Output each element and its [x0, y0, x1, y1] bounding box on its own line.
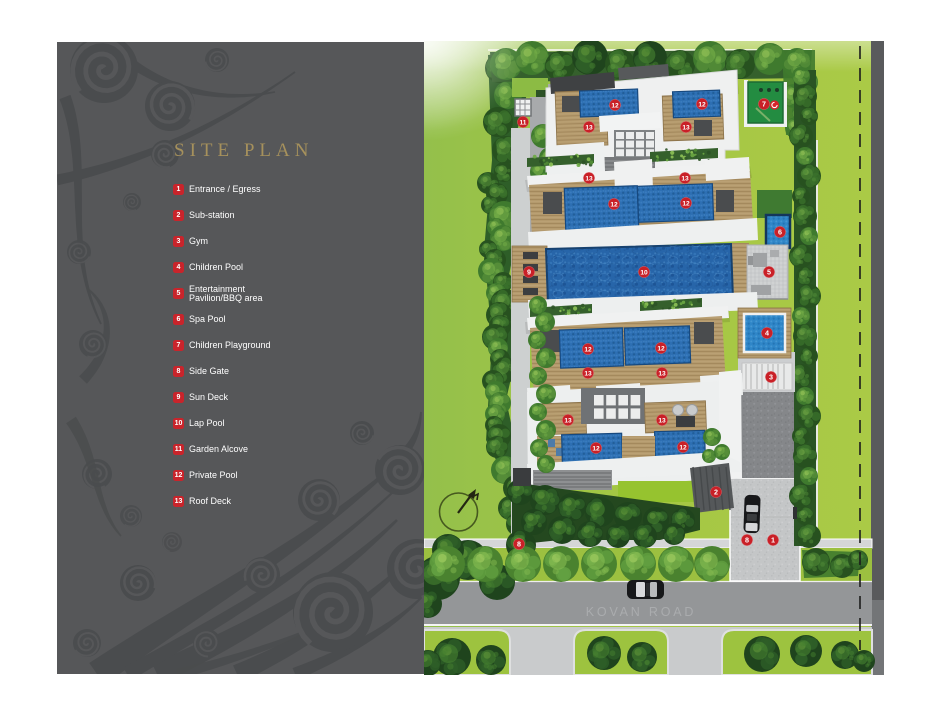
svg-text:1: 1: [771, 536, 775, 545]
svg-text:8: 8: [517, 540, 521, 549]
svg-text:12: 12: [679, 444, 687, 451]
svg-text:13: 13: [681, 175, 689, 182]
svg-text:12: 12: [592, 445, 600, 452]
svg-text:6: 6: [778, 228, 782, 237]
svg-text:12: 12: [611, 102, 619, 109]
svg-text:13: 13: [564, 417, 572, 424]
svg-text:13: 13: [682, 124, 690, 131]
svg-text:12: 12: [610, 201, 618, 208]
svg-text:13: 13: [658, 417, 666, 424]
svg-text:7: 7: [762, 100, 766, 109]
svg-text:4: 4: [765, 329, 769, 338]
svg-text:12: 12: [698, 101, 706, 108]
svg-text:13: 13: [584, 370, 592, 377]
svg-text:8: 8: [745, 536, 749, 545]
svg-text:3: 3: [769, 373, 773, 382]
svg-text:12: 12: [584, 346, 592, 353]
svg-text:11: 11: [520, 119, 527, 126]
svg-text:12: 12: [682, 200, 690, 207]
svg-text:2: 2: [714, 488, 718, 497]
svg-text:13: 13: [585, 124, 593, 131]
svg-text:13: 13: [585, 175, 593, 182]
svg-text:10: 10: [640, 269, 648, 276]
svg-text:13: 13: [658, 370, 666, 377]
svg-text:12: 12: [657, 345, 665, 352]
svg-text:9: 9: [527, 268, 531, 277]
svg-text:5: 5: [767, 268, 771, 277]
